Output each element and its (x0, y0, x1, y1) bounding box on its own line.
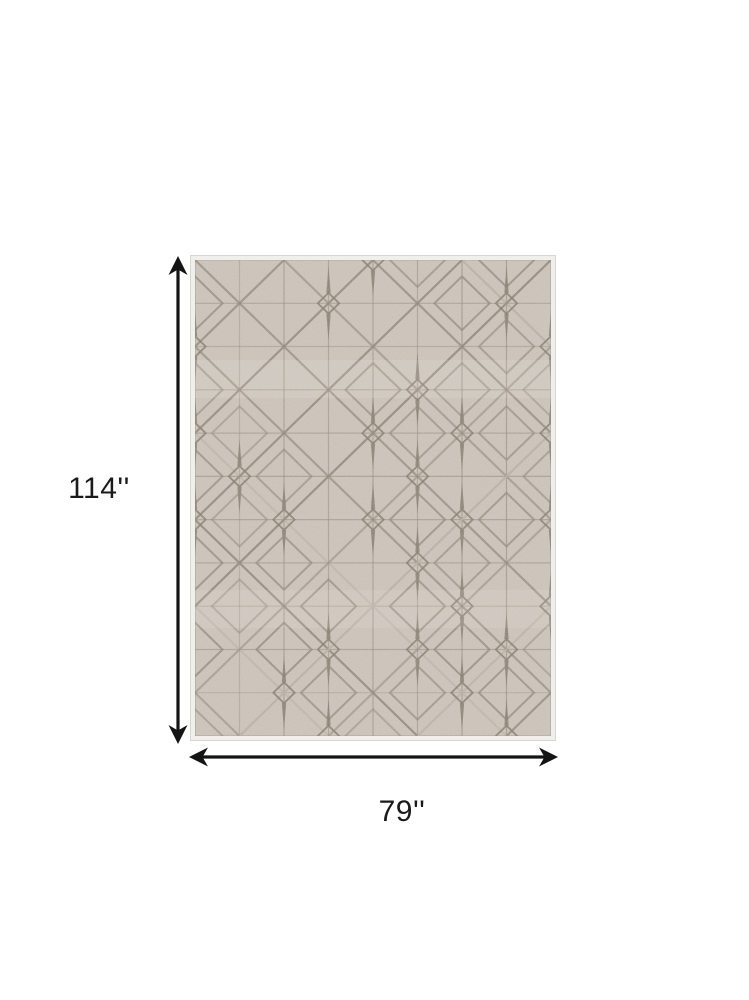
rug-dimension-figure: 114'' 79'' (0, 0, 749, 1000)
rug-pattern-graphic (195, 260, 551, 736)
rug-image (190, 255, 556, 741)
vertical-dimension-arrow (166, 255, 190, 745)
height-dimension-label: 114'' (68, 472, 130, 506)
width-dimension-label: 79'' (379, 795, 426, 829)
horizontal-dimension-arrow (188, 745, 559, 769)
